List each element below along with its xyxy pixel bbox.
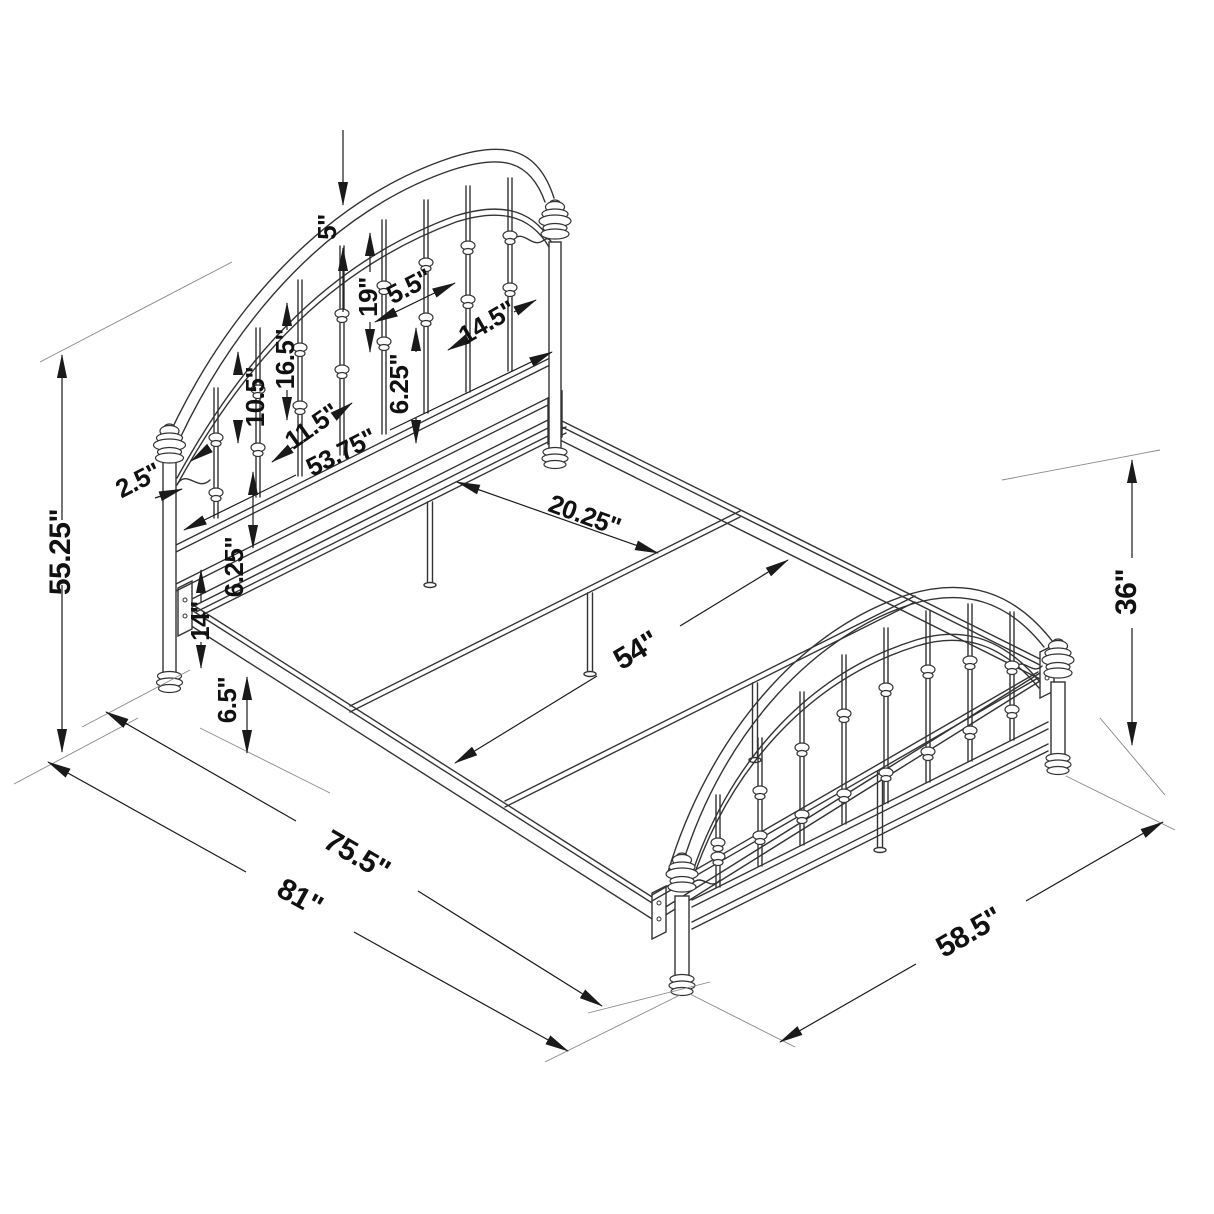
spindle-knob <box>923 673 933 679</box>
spindle-knob <box>923 755 933 761</box>
dim-label-mid-spindle: 16.5" <box>270 329 300 389</box>
spindle-knob <box>505 239 515 245</box>
footboard-right-post <box>1051 682 1065 758</box>
headboard-left-post <box>163 460 176 676</box>
slat-4 <box>652 672 1038 901</box>
spindle-knob <box>839 717 849 723</box>
headboard-scroll-left <box>178 479 210 484</box>
spindle-knob <box>965 664 975 670</box>
spindle-knob <box>211 496 221 502</box>
spindle-knob <box>755 839 765 845</box>
footboard-outer-arch <box>668 587 1053 872</box>
post-finial <box>541 229 569 239</box>
extension-lines <box>14 262 1175 1062</box>
dim-label-footboard-width: 58.5" <box>931 901 1008 965</box>
spindle-knob <box>881 776 891 782</box>
post-finial <box>1044 668 1072 678</box>
dim-label-long-spindle: 19" <box>353 277 383 317</box>
slat-3 <box>505 596 915 807</box>
spindle-knob <box>839 797 849 803</box>
dim-label-overall-length: 81" <box>272 872 328 923</box>
dim-label-lower-rail-gap: 6.25" <box>219 537 249 597</box>
footboard-left-post <box>675 896 689 978</box>
spindle-knob <box>713 846 723 852</box>
spindle-knob <box>965 734 975 740</box>
footboard-rails <box>692 722 1048 929</box>
spindle-knob <box>797 818 807 824</box>
dim-label-short-spindle: 10.5" <box>240 367 270 427</box>
dim-label-headboard-height: 55.25" <box>44 509 77 595</box>
spindle-knob <box>421 321 431 327</box>
spindle-knob <box>379 345 389 351</box>
spindle-knob <box>1007 713 1017 719</box>
dim-label-frame-inner-width: 54" <box>608 625 665 677</box>
slat-2 <box>350 511 740 712</box>
bed-dimension-diagram: 55.25" 5" 19" 5.5" 14.5" 16.5" 10.5" 6.2… <box>0 0 1214 1214</box>
post-finial <box>156 453 184 463</box>
spindle-knob <box>337 373 347 379</box>
footboard <box>668 587 1065 978</box>
spindle-knob <box>505 291 515 297</box>
dim-label-frame-length: 75.5" <box>318 824 395 888</box>
post-foot <box>544 461 566 469</box>
dim-label-footboard-height: 36" <box>1110 569 1143 615</box>
spindle-knob <box>1007 669 1017 675</box>
spindle-knob <box>211 441 221 447</box>
bed-drawing <box>154 149 1075 995</box>
spindle-knob <box>881 691 891 697</box>
spindle-knob <box>463 249 473 255</box>
dim-label-rail-section-height: 6.5" <box>212 677 242 723</box>
footboard-inner-arch-lower-edge <box>690 640 1039 887</box>
spindle-knob <box>713 860 723 866</box>
spindle-knob <box>755 794 765 800</box>
spindle-knob <box>797 751 807 757</box>
diagram-canvas: 55.25" 5" 19" 5.5" 14.5" 16.5" 10.5" 6.2… <box>0 0 1214 1214</box>
post-foot <box>1047 767 1069 775</box>
near-side-rail <box>182 598 660 924</box>
headboard-right-post <box>549 242 561 452</box>
slat-1 <box>196 427 566 618</box>
dim-label-slat-spacing: 20.25" <box>545 488 625 542</box>
spindle-knob <box>463 303 473 309</box>
post-finial <box>668 882 696 892</box>
spindle-knob <box>337 317 347 323</box>
post-foot <box>159 685 181 693</box>
dim-label-headboard-rail-gap: 6.25" <box>384 354 414 414</box>
spindle-knob <box>253 451 263 457</box>
dim-label-rail-floor-height: 14" <box>185 601 215 641</box>
dim-label-arch-rail-gap: 5" <box>312 214 342 240</box>
